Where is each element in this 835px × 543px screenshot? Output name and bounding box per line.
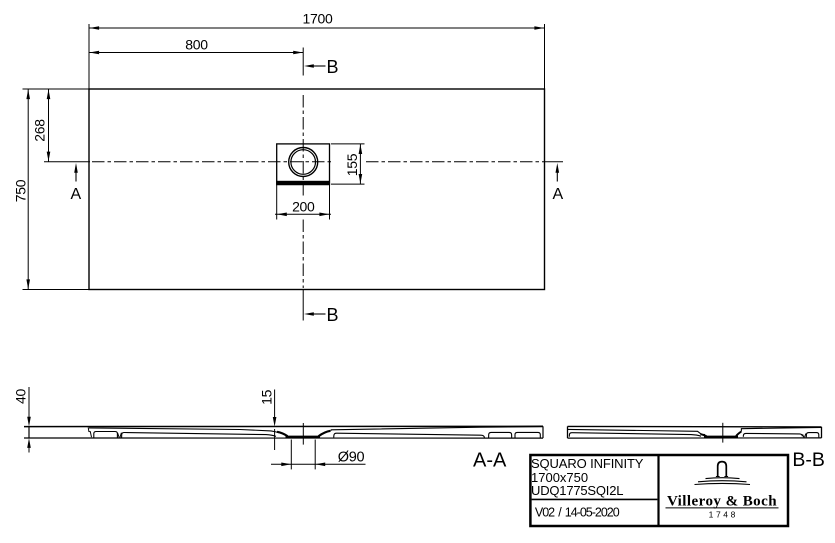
svg-text:1748: 1748 xyxy=(709,510,738,520)
svg-text:A: A xyxy=(70,186,81,203)
svg-text:750: 750 xyxy=(12,179,28,202)
svg-text:V02 / 14-05-2020: V02 / 14-05-2020 xyxy=(535,505,620,519)
svg-text:Villeroy & Boch: Villeroy & Boch xyxy=(667,493,777,509)
svg-text:A-A: A-A xyxy=(473,450,507,472)
svg-text:B-B: B-B xyxy=(792,449,825,471)
svg-text:40: 40 xyxy=(13,389,29,404)
svg-text:800: 800 xyxy=(185,36,208,52)
svg-text:Ø90: Ø90 xyxy=(338,450,365,466)
svg-text:UDQ1775SQI2L: UDQ1775SQI2L xyxy=(531,483,623,498)
svg-text:268: 268 xyxy=(32,119,48,142)
svg-text:B: B xyxy=(327,57,339,77)
svg-text:15: 15 xyxy=(259,389,275,404)
svg-text:SQUARO INFINITY: SQUARO INFINITY xyxy=(531,456,644,471)
svg-text:B: B xyxy=(327,305,339,325)
svg-text:200: 200 xyxy=(292,198,315,214)
svg-text:155: 155 xyxy=(344,153,360,176)
svg-text:1700: 1700 xyxy=(303,11,333,27)
svg-text:A: A xyxy=(552,186,563,203)
